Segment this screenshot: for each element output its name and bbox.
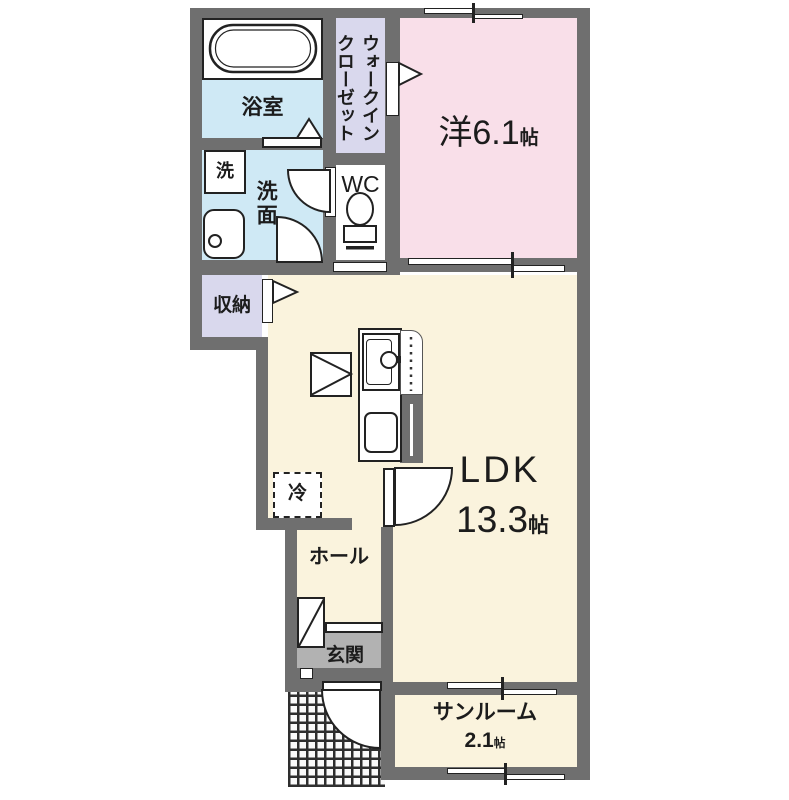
label-storage: 収納 — [202, 295, 262, 317]
label-washer: 洗 — [204, 161, 246, 182]
label-wc: WC — [336, 171, 385, 197]
label-fridge: 冷 — [273, 483, 322, 505]
washbasin-drain-icon — [209, 235, 221, 247]
washroom-door-swing — [277, 217, 322, 262]
label-western-room: 洋6.1帖 — [400, 114, 577, 153]
floorplan-symbols — [0, 0, 789, 800]
floorplan-canvas: 浴室 洗 洗面 ウォークイン クローゼット WC 洋6.1帖 収納 LDK 13… — [0, 0, 789, 800]
toilet-bowl-icon — [347, 193, 373, 225]
storage-door-flag — [273, 281, 297, 303]
label-bathroom: 浴室 — [202, 96, 323, 120]
toilet-tank-icon — [344, 226, 376, 242]
label-ldk-size: 13.3帖 — [420, 499, 585, 542]
wc-door-swing — [288, 170, 330, 212]
label-entrance: 玄関 — [303, 645, 387, 667]
front-door-swing — [322, 690, 380, 748]
bath-door-icon — [297, 119, 321, 138]
label-hall: ホール — [297, 546, 381, 569]
shoe-cabinet-diagonal — [299, 599, 324, 646]
label-walk-in-closet: ウォークイン クローゼット — [332, 22, 382, 154]
label-washroom: 洗面 — [253, 174, 277, 234]
wic-door-flag — [399, 63, 421, 85]
toilet-base-icon — [346, 246, 374, 250]
label-sunroom: サンルーム — [393, 701, 577, 725]
label-sunroom-size: 2.1帖 — [393, 729, 577, 753]
kitchen-faucet-icon — [381, 352, 397, 368]
range-hood-lines — [311, 354, 351, 395]
label-ldk: LDK — [420, 449, 580, 492]
washbasin-icon — [204, 210, 244, 258]
kitchen-faucet-base — [396, 356, 401, 363]
